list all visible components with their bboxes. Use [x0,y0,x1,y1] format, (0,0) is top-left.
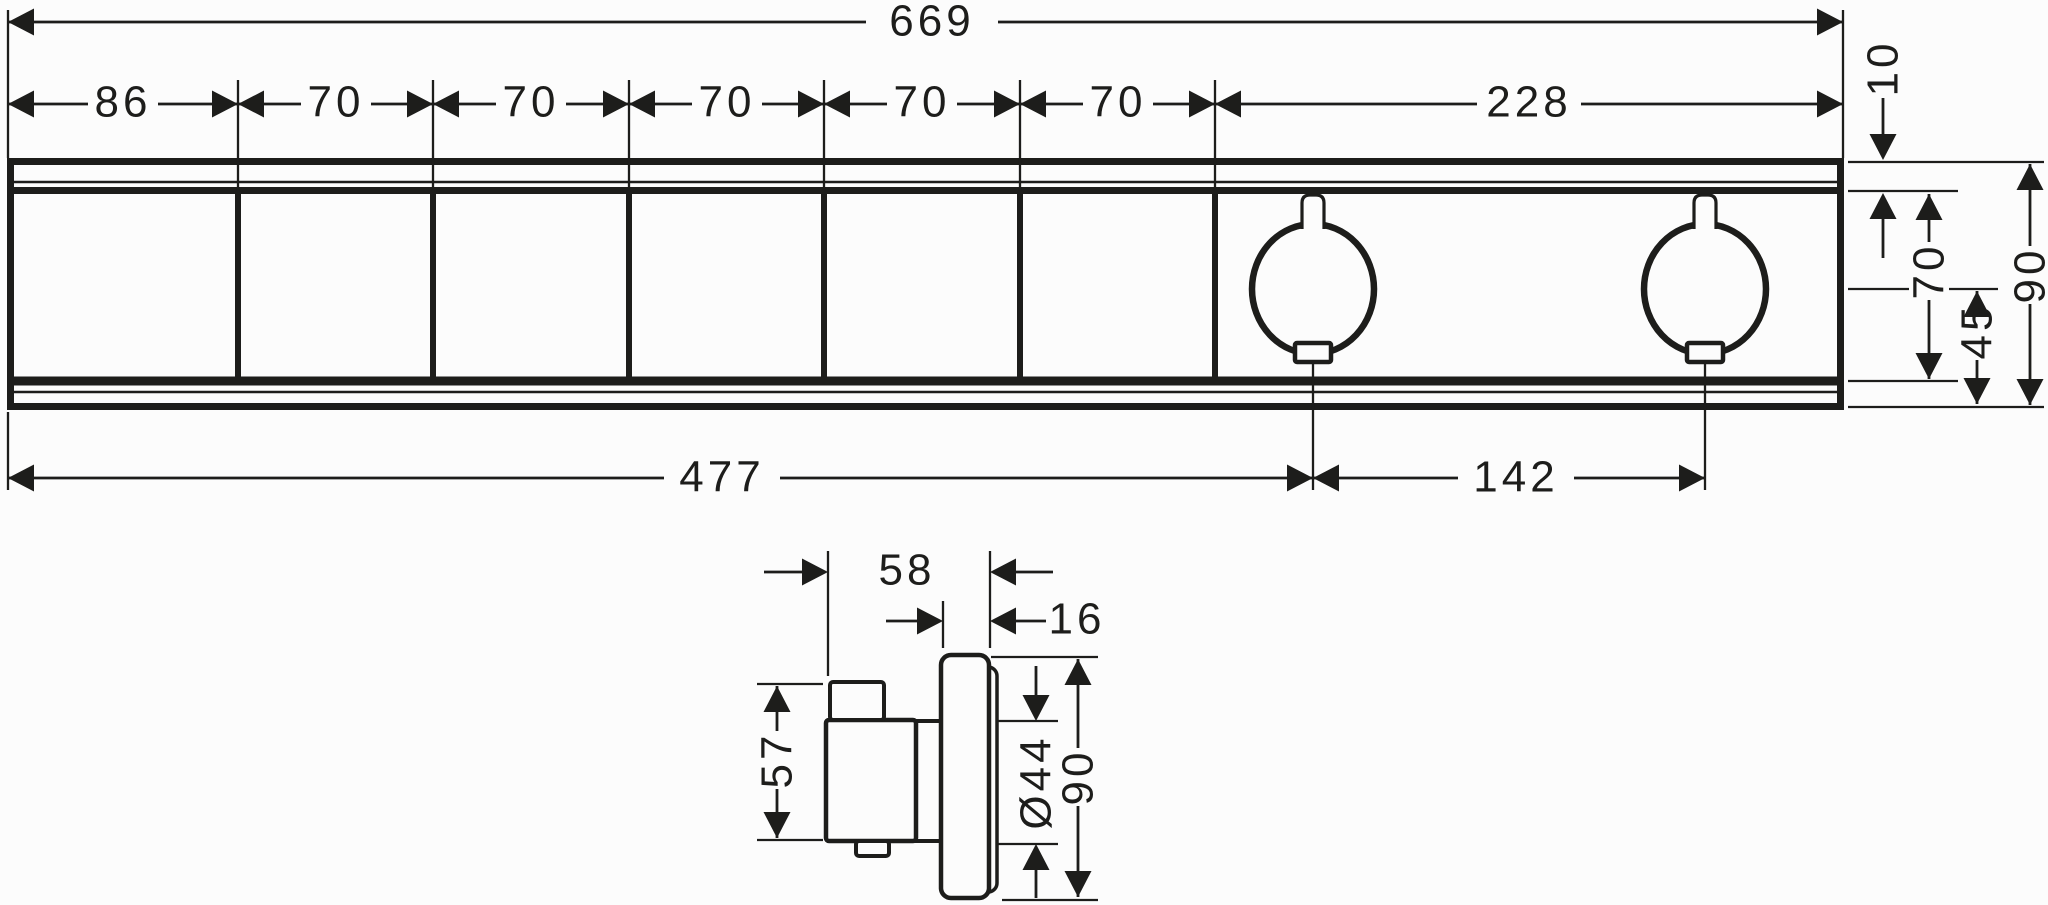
dim-front-segment-2: 70 [308,78,365,127]
side-valve-neck [916,721,941,841]
knob-1-stem [1302,195,1324,229]
knob-1-circle [1252,224,1374,354]
dim-front-total-height: 90 [2006,247,2048,304]
dim-front-segment-7: 228 [1486,78,1571,127]
knob-1-tab [1295,343,1331,362]
knob-2-tab [1687,343,1723,362]
front-view [8,162,1843,407]
side-view [826,655,997,898]
dim-front-knob-to-bottom: 45 [1953,303,2002,360]
dim-front-segment-6: 70 [1090,78,1147,127]
dim-front-top-rail: 10 [1859,40,1908,97]
side-valve-body [826,720,916,841]
side-body-tab [856,841,889,856]
dim-front-segment-3: 70 [503,78,560,127]
dim-front-knob-spacing: 142 [1473,453,1558,502]
dim-front-total-width: 669 [889,0,974,46]
dim-front-body-height: 70 [1905,243,1954,300]
dim-side-escutcheon-thickness: 16 [1049,595,1106,644]
dimensions-right: 10 70 45 90 [1848,40,2048,407]
technical-drawing-canvas: 669 86 70 70 70 70 [0,0,2048,905]
dim-side-escutcheon-height: 90 [1054,749,1103,806]
valve-dimension-drawing: 669 86 70 70 70 70 [0,0,2048,905]
dim-front-segment-4: 70 [699,78,756,127]
knob-2-circle [1644,224,1766,354]
dim-front-edge-to-first-knob: 477 [679,453,764,502]
panel-outline [11,162,1841,407]
side-body-step [830,682,884,720]
dim-side-body-height: 57 [753,732,802,789]
dim-front-segment-1: 86 [95,78,152,127]
side-escutcheon [941,655,989,898]
knob-2-stem [1694,195,1716,229]
dim-side-total-depth: 58 [879,546,936,595]
dim-front-segment-5: 70 [894,78,951,127]
